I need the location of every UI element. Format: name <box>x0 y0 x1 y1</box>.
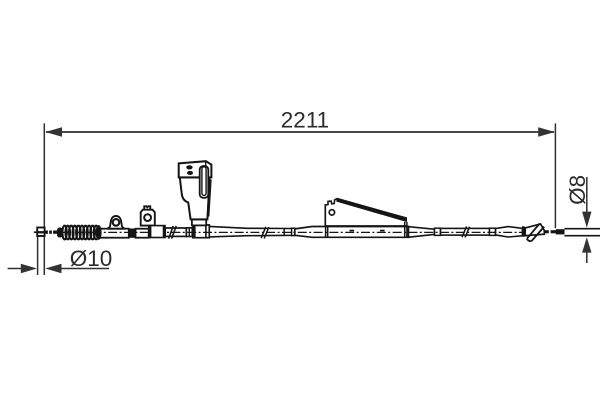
svg-text:Ø10: Ø10 <box>70 246 113 271</box>
svg-text:Ø8: Ø8 <box>565 175 590 205</box>
svg-text:2211: 2211 <box>281 108 329 133</box>
